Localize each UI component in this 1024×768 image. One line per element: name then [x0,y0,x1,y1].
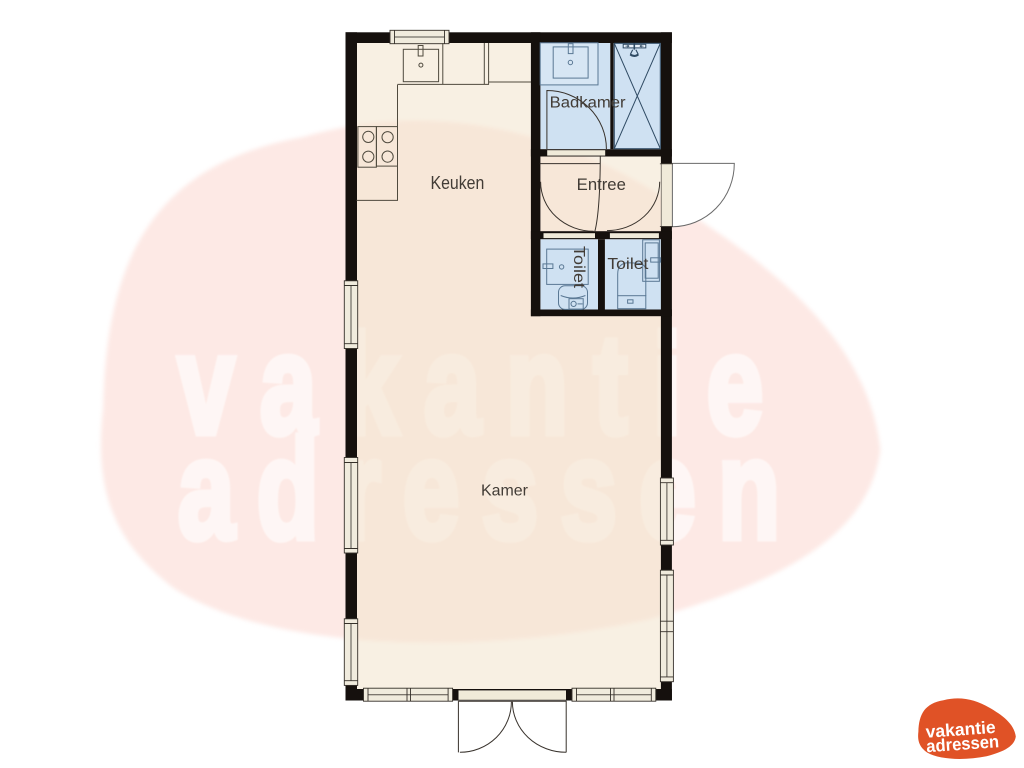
svg-text:Toilet: Toilet [607,256,649,273]
svg-text:Entree: Entree [577,176,626,194]
svg-text:Keuken: Keuken [431,173,485,193]
svg-text:Kamer: Kamer [481,483,529,500]
svg-text:Badkamer: Badkamer [550,94,626,111]
svg-text:Toilet: Toilet [570,246,587,289]
